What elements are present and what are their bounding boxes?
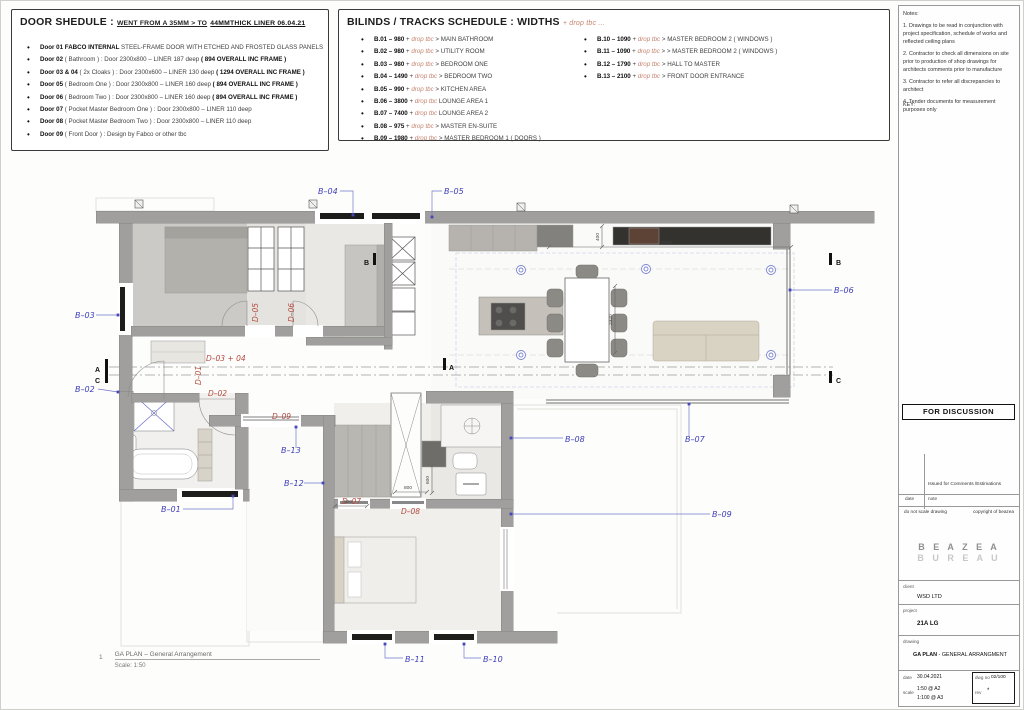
leader-anchor [463, 643, 466, 646]
note-item: 3. Contractor to refer all discrepancies… [903, 79, 1015, 95]
revision-col-note: note [928, 496, 937, 501]
divider [899, 635, 1019, 636]
door-schedule-box: DOOR SHEDULE : WENT FROM A 35MM > TO 44M… [11, 9, 329, 151]
client-label: client [903, 584, 914, 589]
section-marker-label: A [95, 367, 100, 374]
leader-line [464, 644, 481, 658]
note-item: 2. Contractor to check all dimensions on… [903, 51, 1015, 74]
date-value: 30.04.2021 [917, 674, 942, 680]
door-schedule-item: Door 03 & 04 ( 2x Cloaks ) : Door 2300x6… [40, 69, 328, 76]
blind-schedule-item: B.13 – 2100 + drop tbc > FRONT DOOR ENTR… [597, 73, 887, 80]
scale-value-1: 1:50 @ A2 [917, 686, 940, 692]
blind-schedule-item: B.11 – 1090 + drop tbc > > MASTER BEDROO… [597, 48, 887, 55]
door-schedule-item: Door 06 ( Bedroom Two ) : Door 2300x800 … [40, 94, 328, 101]
drawing-number-box: dwg no 02/100 rev * [972, 672, 1015, 704]
blind-schedule-item: B.07 – 7400 + drop tbc LOUNGE AREA 2 [374, 110, 604, 117]
leader-anchor [322, 482, 325, 485]
leader-anchor [352, 214, 355, 217]
divider [899, 604, 1019, 605]
blind-label: B–04 [318, 187, 338, 196]
leader-anchor [117, 314, 120, 317]
logo-beazea: B E A Z E A [899, 542, 1019, 552]
section-marker-label: B [836, 260, 841, 267]
divider [899, 670, 1019, 671]
blind-label: B–08 [565, 435, 585, 444]
leader-anchor [117, 391, 120, 394]
section-marker-bar [373, 253, 376, 265]
blind-schedule-item: B.01 – 980 + drop tbc > MAIN BATHROOM [374, 36, 604, 43]
leader-line [385, 644, 403, 658]
door-label: D–01 [194, 366, 203, 385]
utility-appliances [390, 237, 415, 335]
status-stamp: FOR DISCUSSION [902, 404, 1015, 420]
bed-bedroom-one [165, 227, 247, 293]
revision-note: Issued for Comments /Estimations [928, 482, 1001, 487]
leader-anchor [384, 643, 387, 646]
blind-label: B–02 [75, 385, 95, 394]
drawing-label: drawing [903, 639, 919, 644]
media-wall [613, 227, 771, 245]
door-schedule-item: Door 07 ( Pocket Master Bedroom One ) : … [40, 106, 328, 113]
leader-anchor [295, 426, 298, 429]
leader-anchor [232, 495, 235, 498]
leader-anchor [510, 437, 513, 440]
door-label: D–05 [251, 303, 260, 322]
door-label: D–06 [287, 303, 296, 322]
notes-heading: Notes: [903, 11, 1015, 19]
leader-anchor [431, 216, 434, 219]
blind-label: B–12 [284, 479, 304, 488]
rev-value: * [987, 688, 989, 694]
dimension-text: 400 [595, 233, 601, 241]
leader-anchor [510, 513, 513, 516]
dimension-text: 600 [425, 476, 431, 484]
door-schedule-item: Door 08 ( Pocket Master Bedroom Two ) : … [40, 118, 328, 125]
blind-label: B–09 [712, 510, 732, 519]
door-schedule-item: Door 09 ( Front Door ) : Design by Fabco… [40, 131, 328, 138]
blind-schedule-item: B.08 – 975 + drop tbc > MASTER EN-SUITE [374, 123, 604, 130]
door-label: D–03 + 04 [206, 354, 246, 363]
blind-label: B–11 [405, 655, 425, 664]
client-value: WSD LTD [917, 594, 942, 600]
blind-schedule-item: B.09 – 1980 + drop tbc > MASTER BEDROOM … [374, 135, 604, 142]
disclaimer-left: do not scale drawing [904, 509, 947, 514]
dimension-text: 800 [344, 499, 352, 505]
blind-schedule-item: B.04 – 1490 + drop tbc > BEDROOM TWO [374, 73, 604, 80]
project-label: project [903, 608, 917, 613]
door-schedule-item: Door 02 ( Bathroom ) : Door 2300x800 – L… [40, 56, 328, 63]
section-marker-bar [105, 371, 108, 383]
blind-label: B–01 [161, 505, 181, 514]
door-label: D–09 [272, 412, 291, 421]
section-marker-bar [829, 253, 832, 265]
blind-schedule-item: B.05 – 990 + drop tbc > KITCHEN AREA [374, 86, 604, 93]
revision-col-date: date [905, 496, 914, 501]
blind-schedule-item: B.06 – 3800 + drop tbc LOUNGE AREA 1 [374, 98, 604, 105]
note-item: 1. Drawings to be read in conjunction wi… [903, 23, 1015, 46]
scale-value-2: 1:100 @ A3 [917, 695, 943, 701]
blind-schedule-item: B.02 – 980 + drop tbc > UTILITY ROOM [374, 48, 604, 55]
dimension-text: 4413 [661, 240, 672, 246]
leader-anchor [688, 403, 691, 406]
blinds-schedule-box: BILINDS / TRACKS SCHEDULE : WIDTHS + dro… [338, 9, 890, 141]
blind-schedule-item: B.03 – 980 + drop tbc > BEDROOM ONE [374, 61, 604, 68]
drawing-value: GA PLAN - GENERAL ARRANGMENT [913, 652, 1007, 658]
caption-number: 1 [99, 651, 103, 669]
blind-label: B–13 [281, 446, 301, 455]
door-schedule-list: Door 01 FABCO INTERNAL STEEL-FRAME DOOR … [40, 44, 328, 143]
logo-bureau: B U R E A U [899, 553, 1019, 563]
leader-anchor [789, 289, 792, 292]
project-value: 21A LG [917, 620, 938, 627]
dwgno-value: 02/100 [991, 675, 1006, 680]
door-schedule-item: Door 01 FABCO INTERNAL STEEL-FRAME DOOR … [40, 44, 328, 51]
disclaimer-right: copyright of beazea [973, 509, 1014, 514]
revision-table-divider [924, 454, 925, 509]
door-label: D–02 [208, 389, 227, 398]
divider [899, 580, 1019, 581]
note-item: 4. Tender documents for measurement purp… [903, 99, 1015, 115]
section-marker-bar [443, 358, 446, 370]
date-label: date [903, 675, 912, 680]
blind-label: B–03 [75, 311, 95, 320]
divider [899, 494, 1019, 495]
dimension-text: 2320 [608, 314, 614, 325]
section-marker-label: B [364, 260, 369, 267]
section-marker-label: C [95, 378, 100, 385]
rev-label: rev [975, 690, 981, 695]
blind-label: B–06 [834, 286, 854, 295]
divider [899, 506, 1019, 507]
door-schedule-item: Door 05 ( Bedroom One ) : Door 2300x800 … [40, 81, 328, 88]
door-schedule-title: DOOR SHEDULE : WENT FROM A 35MM > TO 44M… [20, 16, 320, 28]
blind-schedule-item: B.10 – 1090 + drop tbc > MASTER BEDROOM … [597, 36, 887, 43]
key-label: KEY: [903, 102, 915, 108]
caption-title: GA PLAN – General Arrangement [115, 651, 320, 660]
blind-label: B–07 [685, 435, 706, 444]
pocket-door [392, 501, 424, 504]
section-marker-label: A [449, 365, 454, 372]
plan-caption: 1 GA PLAN – General Arrangement Scale: 1… [99, 651, 320, 669]
blinds-list-right: B.10 – 1090 + drop tbc > MASTER BEDROOM … [597, 36, 887, 86]
title-block-panel: Notes: 1. Drawings to be read in conjunc… [898, 5, 1020, 707]
section-marker-bar [829, 371, 832, 383]
leader-line [98, 389, 118, 392]
master-bed [334, 537, 416, 603]
dwgno-label: dwg no [975, 675, 990, 680]
blind-schedule-item: B.12 – 1790 + drop tbc > HALL TO MASTER [597, 61, 887, 68]
caption-scale: Scale: 1:50 [115, 662, 320, 669]
drawing-sheet: B–01B–02B–03B–04B–05B–06B–07B–08B–09B–10… [0, 0, 1024, 710]
scale-label: scale [903, 690, 914, 695]
blind-label: B–10 [483, 655, 503, 664]
door-label: D–08 [401, 507, 420, 516]
blinds-schedule-title: BILINDS / TRACKS SCHEDULE : WIDTHS + dro… [347, 16, 881, 28]
sofa [653, 321, 759, 361]
notes-section: Notes: 1. Drawings to be read in conjunc… [903, 11, 1015, 120]
section-marker-bar [105, 359, 108, 371]
section-marker-label: C [836, 378, 841, 385]
dimension-text: 800 [404, 485, 412, 491]
blinds-list-left: B.01 – 980 + drop tbc > MAIN BATHROOMB.0… [374, 36, 604, 148]
blind-label: B–05 [444, 187, 464, 196]
